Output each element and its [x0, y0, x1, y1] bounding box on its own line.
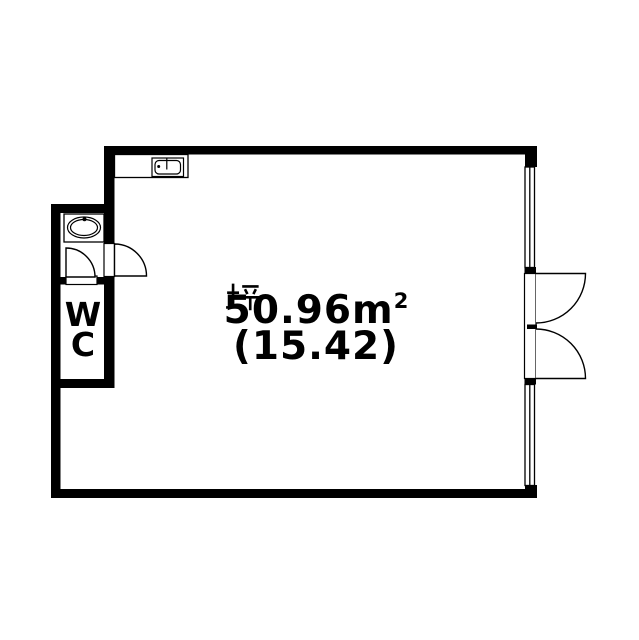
- kitchen-sink-icon: [152, 158, 184, 177]
- entry-door-threshold: [104, 244, 115, 277]
- wc-door-swing: [66, 248, 95, 277]
- area-m2-sup: 2: [394, 289, 409, 313]
- bottom-wall: [52, 489, 537, 498]
- wc-bottom-wall: [51, 379, 115, 388]
- wc-divider-right: [97, 277, 107, 285]
- entry-door-swing: [115, 244, 147, 276]
- wc-label-line2: C: [65, 330, 101, 360]
- main-left-wall-lower: [104, 277, 115, 389]
- double-door-bottom-leaf: [536, 329, 586, 379]
- window-upper: [525, 167, 535, 268]
- area-tsubo-prefix: (15.42: [233, 324, 380, 369]
- left-outer-wall: [51, 204, 61, 498]
- area-tsubo-suffix: ): [380, 324, 399, 369]
- wc-label: W C: [65, 300, 101, 360]
- wc-top-wall: [51, 204, 112, 213]
- right-corner-top: [525, 146, 537, 167]
- room-area-label: 50.96m2 (15.42): [224, 278, 409, 370]
- double-door-top-leaf: [536, 274, 586, 324]
- window-cap-lower: [525, 379, 537, 385]
- wash-basin-icon: [64, 214, 104, 242]
- main-left-wall-upper: [104, 146, 115, 244]
- double-door-swing: [536, 274, 586, 379]
- wc-divider-left: [55, 277, 66, 285]
- floor-plan: 50.96m2 (15.42) W C: [0, 0, 639, 640]
- tsubo-kanji-glyph: [225, 278, 260, 313]
- area-tsubo-line: (15.42): [224, 324, 409, 370]
- double-door-center-tick: [527, 325, 537, 330]
- window-lower: [525, 385, 535, 486]
